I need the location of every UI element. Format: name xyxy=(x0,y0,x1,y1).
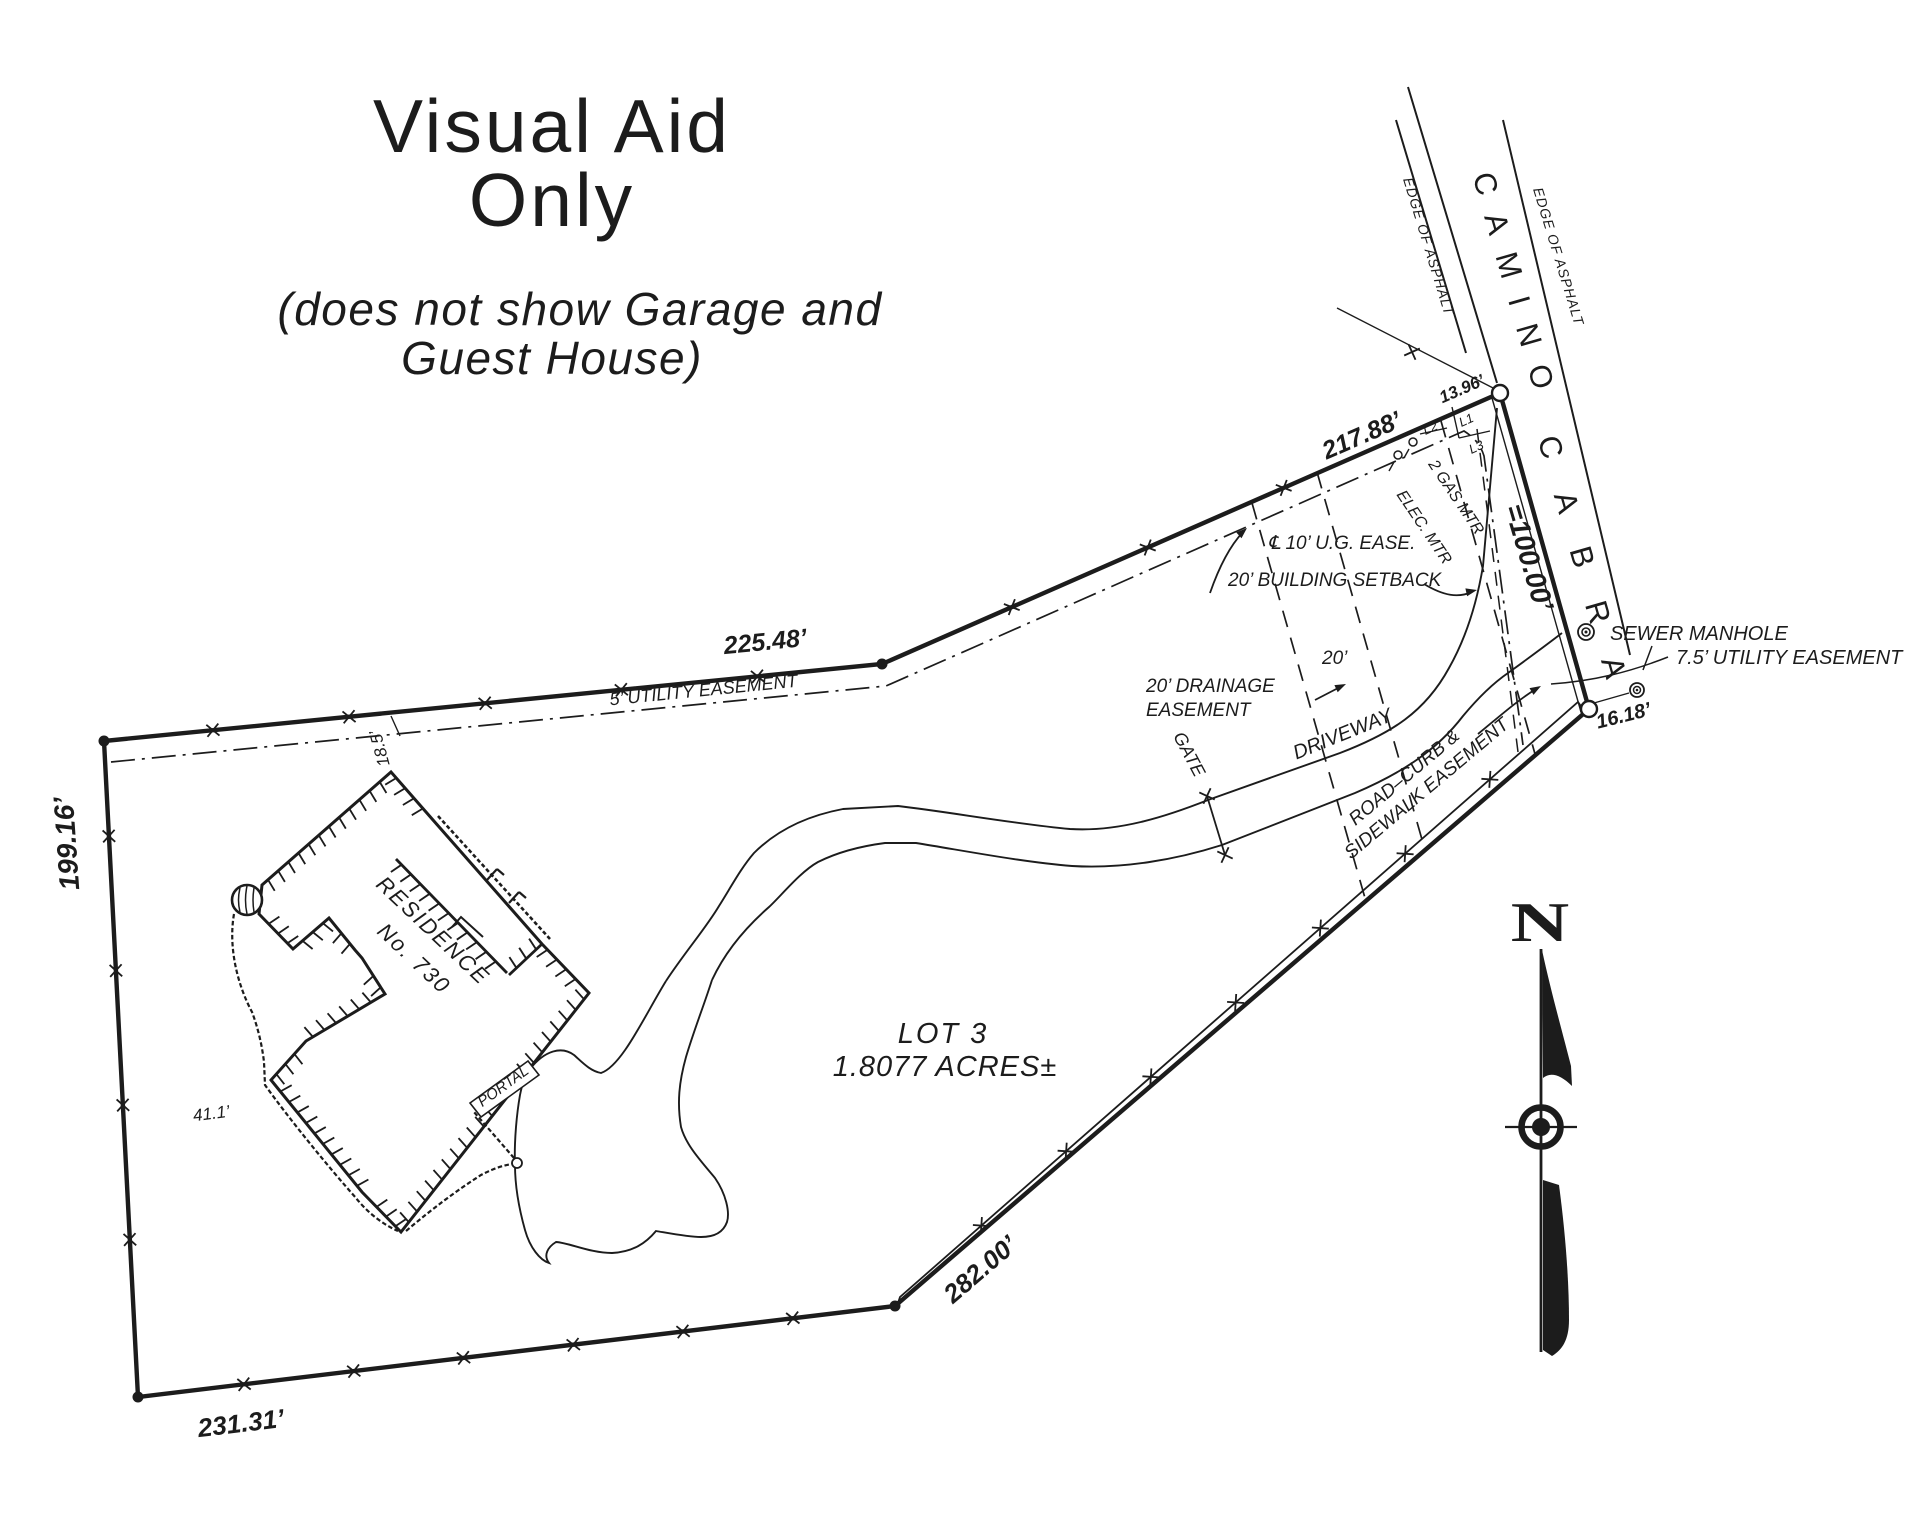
svg-text:N: N xyxy=(1511,892,1570,954)
svg-text:Only: Only xyxy=(469,158,635,242)
svg-text:(does not show Garage and: (does not show Garage and xyxy=(277,283,882,335)
svg-text:7.5’ UTILITY EASEMENT: 7.5’ UTILITY EASEMENT xyxy=(1676,647,1904,669)
svg-text:20’ DRAINAGE: 20’ DRAINAGE xyxy=(1145,676,1275,697)
svg-text:Visual Aid: Visual Aid xyxy=(373,84,731,168)
svg-text:1.8077 ACRES±: 1.8077 ACRES± xyxy=(833,1051,1058,1083)
svg-text:EASEMENT: EASEMENT xyxy=(1146,700,1252,721)
svg-text:199.16’: 199.16’ xyxy=(48,795,86,892)
svg-text:℄ 10’ U.G. EASE.: ℄ 10’ U.G. EASE. xyxy=(1268,533,1415,554)
svg-text:Guest House): Guest House) xyxy=(401,332,703,384)
svg-text:LOT 3: LOT 3 xyxy=(898,1018,989,1050)
svg-text:20’ BUILDING SETBACK: 20’ BUILDING SETBACK xyxy=(1227,570,1443,591)
svg-text:20’: 20’ xyxy=(1321,648,1348,669)
svg-text:SEWER MANHOLE: SEWER MANHOLE xyxy=(1610,623,1788,645)
